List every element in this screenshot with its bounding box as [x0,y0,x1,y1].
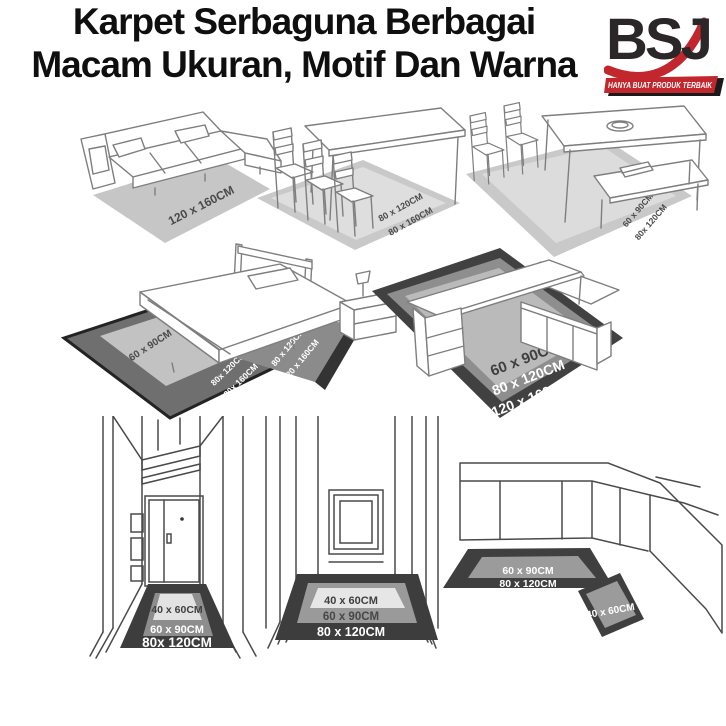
scene-kitchen: 60 x 90CM 80 x 120CM 40 x 60CM [438,433,726,675]
dining-carpet-inner [271,167,446,240]
carpet-size-label: 80x 120CM [142,635,212,650]
poster-title: Karpet Serbaguna Berbagai Macam Ukuran, … [0,0,608,86]
carpet-size-label: 80 x 120CM [317,625,385,639]
scene-desk: 60 x 90CM 80 x 120CM 120 x 160CM [365,246,685,438]
scene-dining-table: 80 x 120CM 80 x 160CM [245,100,470,258]
carpet-size-label: 40 x 60CM [324,595,378,607]
carpet-size-label: 60 x 90CM [502,565,554,577]
scene-bed: 60 x 90CM 80x 120CM 120x 160CM 80 x 120C… [52,240,402,428]
scene-dining-set: 60 x 90CM 80x 120CM [452,100,726,262]
title-line-2: Macam Ukuran, Motif Dan Warna [0,43,608,86]
title-line-1: Karpet Serbaguna Berbagai [0,0,608,43]
poster-canvas: Karpet Serbaguna Berbagai Macam Ukuran, … [0,0,726,726]
logo-tagline: HANYA BUAT PRODUK TERBAIK [608,81,713,90]
carpet-size-label: 80 x 120CM [499,578,556,590]
scene-hallway-door: 40 x 60CM 60 x 90CM 80x 120CM [88,416,263,678]
carpet-size-label: 60 x 90CM [323,611,379,623]
bsj-logo: BSJ HANYA BUAT PRODUK TERBAIK [604,2,724,98]
carpet-size-label: 40 x 60CM [151,604,203,616]
logo-monogram: BSJ [606,7,710,72]
scene-hallway-window: 40 x 60CM 60 x 90CM 80 x 120CM [256,416,446,668]
